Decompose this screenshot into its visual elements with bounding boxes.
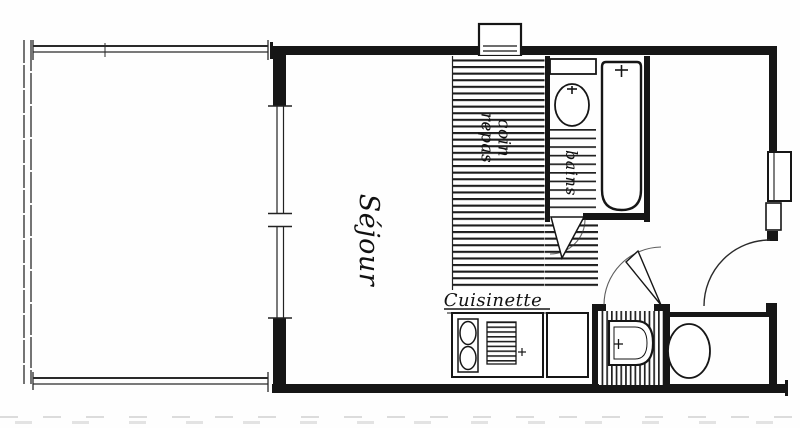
chimney: [479, 24, 521, 56]
sejour-label: Séjour: [354, 194, 382, 286]
bains-right-wall: [644, 56, 650, 222]
wc-door: [604, 247, 661, 305]
toilet: [609, 321, 653, 365]
bains-bottom-wall: [583, 213, 650, 220]
kitchenette: [444, 309, 588, 377]
closet-wall: [670, 312, 772, 317]
bains-partition-wall: [545, 56, 550, 222]
bains-shelf: [550, 59, 596, 74]
sejour-window: [268, 106, 292, 318]
scan-noise-band-2: [6, 421, 800, 424]
washbasin: [555, 84, 589, 126]
scan-noise-band: [0, 416, 800, 418]
kitchen-sink: [458, 319, 478, 372]
appliance: [547, 313, 588, 377]
terrace: [24, 40, 268, 392]
scanned-floor-plan: Séjour coin repas bains Cuisinette: [0, 0, 800, 428]
entry-window: [766, 152, 791, 230]
bathtub: [602, 62, 641, 210]
bains-label: bains: [563, 150, 579, 196]
water-heater: [668, 324, 710, 378]
coin-repas-label: coin repas: [477, 107, 512, 169]
wc: [592, 247, 670, 388]
floor-plan-canvas: [0, 0, 800, 428]
entry-door: [704, 240, 770, 306]
cooktop: [487, 322, 516, 364]
cuisinette-label: Cuisinette: [444, 292, 542, 310]
